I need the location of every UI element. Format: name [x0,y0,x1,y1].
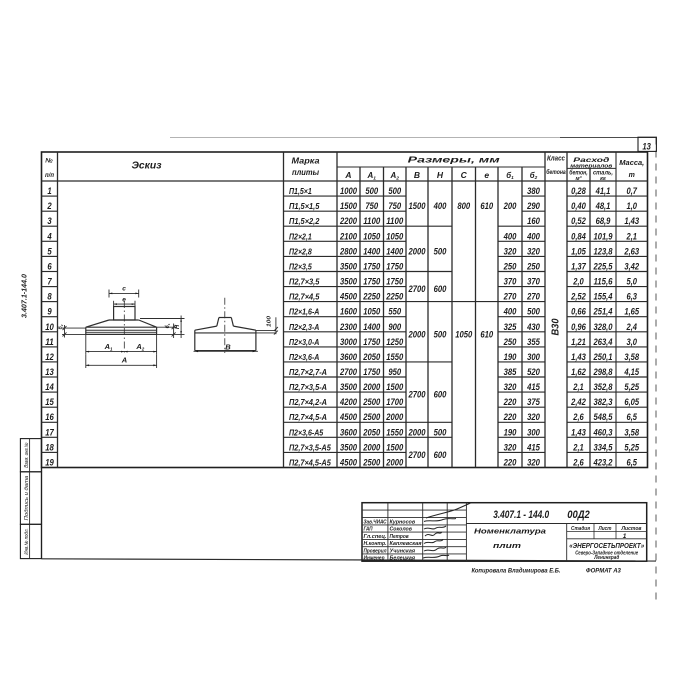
svg-text:17: 17 [45,427,54,437]
svg-text:1,37: 1,37 [571,261,587,271]
svg-text:7: 7 [47,277,52,287]
svg-text:415: 415 [526,442,540,452]
svg-text:Класс: Класс [547,156,565,163]
svg-text:П2,7×3,5-А: П2,7×3,5-А [289,382,327,392]
svg-text:Инженер: Инженер [364,556,385,562]
svg-text:Эскиз: Эскиз [132,161,162,172]
svg-text:3500: 3500 [340,261,357,271]
svg-text:2,42: 2,42 [570,397,586,407]
svg-text:460,3: 460,3 [593,427,613,437]
svg-text:10: 10 [45,322,54,332]
svg-text:2100: 2100 [339,231,357,241]
svg-text:225,5: 225,5 [593,261,614,271]
svg-text:2,6: 2,6 [572,412,584,422]
svg-text:П2,7×4,5-А: П2,7×4,5-А [289,412,327,422]
svg-text:2500: 2500 [362,397,380,407]
svg-text:400: 400 [526,231,540,241]
svg-text:б1: б1 [164,323,171,328]
svg-text:6: 6 [47,261,52,271]
svg-text:Соколов: Соколов [390,527,413,533]
svg-text:2,0: 2,0 [572,277,583,287]
svg-text:ГАП: ГАП [364,527,374,533]
svg-text:600: 600 [434,390,447,400]
svg-text:2200: 2200 [339,216,357,226]
svg-text:Листов: Листов [621,526,642,532]
svg-text:1500: 1500 [409,201,426,211]
svg-text:2000: 2000 [385,457,403,467]
svg-text:1100: 1100 [363,216,380,226]
svg-text:5,25: 5,25 [624,382,640,392]
svg-text:320: 320 [527,412,540,422]
svg-text:0,28: 0,28 [571,186,586,196]
svg-text:2,1: 2,1 [572,382,583,392]
svg-text:1,62: 1,62 [571,367,586,377]
svg-text:В: В [225,342,231,351]
svg-text:9: 9 [47,307,51,317]
svg-text:13: 13 [642,141,651,151]
svg-text:3,42: 3,42 [624,261,639,271]
svg-text:4200: 4200 [339,397,357,407]
svg-text:Н.контр.: Н.контр. [364,541,387,547]
svg-text:Стадия: Стадия [571,526,590,532]
svg-text:2,4: 2,4 [626,322,637,332]
svg-text:А: А [121,356,127,365]
svg-text:Н: Н [175,324,181,329]
svg-text:385: 385 [504,367,518,377]
svg-text:1750: 1750 [363,337,380,347]
svg-text:4: 4 [46,231,51,241]
svg-text:В: В [414,170,420,180]
svg-text:0,40: 0,40 [571,201,586,211]
svg-text:750: 750 [388,201,401,211]
svg-text:320: 320 [504,442,517,452]
svg-text:115,6: 115,6 [594,277,614,287]
svg-text:334,5: 334,5 [594,442,614,452]
svg-text:263,4: 263,4 [593,337,613,347]
svg-text:250: 250 [503,337,517,347]
svg-text:Марка: Марка [292,157,321,166]
svg-text:Каплевская: Каплевская [390,541,423,547]
svg-text:1,05: 1,05 [571,246,587,256]
svg-text:б2: б2 [530,171,538,180]
svg-text:Зав.ЧИАС: Зав.ЧИАС [364,519,388,525]
svg-text:355: 355 [527,337,541,347]
svg-text:1400: 1400 [363,246,380,256]
svg-text:2700: 2700 [339,367,357,377]
svg-text:2000: 2000 [408,427,426,437]
svg-text:3,0: 3,0 [627,337,638,347]
svg-text:270: 270 [526,292,540,302]
svg-text:кг: кг [600,176,606,182]
svg-text:Гл.спец.: Гл.спец. [364,534,387,540]
svg-text:123,8: 123,8 [594,246,613,256]
svg-text:400: 400 [503,307,517,317]
svg-text:325: 325 [504,322,518,332]
svg-text:1400: 1400 [386,246,403,256]
svg-text:1500: 1500 [386,382,403,392]
svg-text:1250: 1250 [386,337,403,347]
svg-text:П2×3,6-А: П2×3,6-А [289,352,319,362]
svg-text:0,52: 0,52 [571,216,586,226]
svg-text:6,3: 6,3 [627,292,638,302]
svg-text:352,8: 352,8 [594,382,613,392]
svg-text:2250: 2250 [362,292,380,302]
svg-text:П1,5×1: П1,5×1 [289,186,312,196]
svg-text:материалов: материалов [570,164,613,170]
svg-text:1600: 1600 [340,307,357,317]
svg-text:19: 19 [45,457,54,467]
svg-text:1100: 1100 [386,216,403,226]
svg-text:3500: 3500 [340,442,357,452]
svg-text:610: 610 [480,330,493,340]
svg-text:п/п: п/п [45,173,54,179]
svg-text:2050: 2050 [362,352,380,362]
svg-text:380: 380 [527,186,540,196]
svg-text:4500: 4500 [339,457,357,467]
svg-text:2300: 2300 [339,322,357,332]
svg-text:1400: 1400 [363,322,380,332]
svg-text:1,21: 1,21 [571,337,586,347]
svg-text:2800: 2800 [339,246,357,256]
svg-text:П2×3,5: П2×3,5 [289,261,312,271]
svg-text:400: 400 [433,201,447,211]
svg-text:6,05: 6,05 [624,397,640,407]
svg-text:220: 220 [503,397,517,407]
svg-text:15: 15 [45,397,54,407]
svg-text:5,25: 5,25 [624,442,640,452]
svg-text:900: 900 [388,322,401,332]
svg-text:1500: 1500 [386,442,403,452]
svg-text:П2,7×4,2-А: П2,7×4,2-А [289,397,327,407]
svg-text:220: 220 [503,412,517,422]
svg-text:1050: 1050 [386,231,403,241]
svg-text:6,5: 6,5 [627,412,638,422]
svg-text:1,0: 1,0 [627,201,638,211]
svg-text:1550: 1550 [386,427,403,437]
svg-text:400: 400 [503,231,517,241]
svg-text:Взам. инв.№: Взам. инв.№ [24,442,30,468]
svg-text:200: 200 [503,201,517,211]
svg-text:251,4: 251,4 [593,307,613,317]
svg-text:250: 250 [503,261,517,271]
svg-text:1700: 1700 [386,397,403,407]
svg-text:68,9: 68,9 [596,216,611,226]
svg-text:П2,7×3,5: П2,7×3,5 [289,277,320,287]
svg-text:П2,7×4,5: П2,7×4,5 [289,292,320,302]
svg-text:1: 1 [47,186,51,196]
svg-text:2,63: 2,63 [624,246,640,256]
svg-text:Проверил: Проверил [364,548,387,554]
svg-text:500: 500 [434,246,447,256]
svg-text:0,96: 0,96 [571,322,587,332]
svg-text:382,3: 382,3 [594,397,613,407]
svg-text:Лист: Лист [598,526,612,532]
svg-text:500: 500 [434,329,447,339]
svg-text:12: 12 [45,352,54,362]
svg-text:бетона: бетона [546,168,566,176]
svg-text:Подпись и дата: Подпись и дата [24,476,30,521]
svg-text:610: 610 [480,201,493,211]
svg-text:1750: 1750 [363,277,380,287]
svg-text:П2,7×2,7-А: П2,7×2,7-А [289,367,327,377]
svg-text:1750: 1750 [386,277,403,287]
svg-text:3600: 3600 [340,352,357,362]
svg-text:с: с [122,285,126,292]
svg-text:Курносов: Курносов [390,519,416,525]
svg-text:2700: 2700 [408,284,426,294]
svg-text:№: № [45,158,53,165]
svg-text:160: 160 [527,216,540,226]
svg-text:3500: 3500 [340,382,357,392]
svg-text:плиты: плиты [292,168,319,177]
svg-text:В30: В30 [550,318,561,335]
svg-text:0,66: 0,66 [571,307,587,317]
svg-text:1: 1 [623,533,627,540]
svg-text:16: 16 [45,412,54,422]
svg-text:320: 320 [504,382,517,392]
svg-text:П2×3,0-А: П2×3,0-А [289,337,319,347]
svg-text:1500: 1500 [340,201,357,211]
svg-text:Н: Н [437,170,444,180]
svg-text:3.407.1-144.0: 3.407.1-144.0 [20,273,29,318]
svg-text:1050: 1050 [363,231,380,241]
svg-text:м³: м³ [575,175,581,182]
svg-text:600: 600 [434,284,447,294]
svg-text:Копировала Владимирова Е.Б.: Копировала Владимирова Е.Б. [472,566,561,574]
svg-text:6,5: 6,5 [627,457,638,467]
svg-text:250,1: 250,1 [593,352,613,362]
svg-text:т: т [629,172,635,179]
svg-text:190: 190 [504,427,517,437]
svg-text:300: 300 [527,352,540,362]
svg-text:320: 320 [527,457,540,467]
svg-text:300: 300 [527,427,540,437]
svg-text:П2×1,6-А: П2×1,6-А [289,307,319,317]
svg-text:Инв.№ подл.: Инв.№ подл. [24,528,30,554]
svg-text:14: 14 [45,382,54,392]
svg-text:370: 370 [504,277,517,287]
svg-text:2,1: 2,1 [626,231,637,241]
svg-text:П1,5×2,2: П1,5×2,2 [289,216,320,226]
svg-text:Петров: Петров [390,534,410,540]
svg-text:П2×2,3-А: П2×2,3-А [289,322,319,332]
svg-text:00Д2: 00Д2 [567,509,590,521]
svg-text:ФОРМАТ А3: ФОРМАТ А3 [586,567,621,574]
svg-text:А1: А1 [367,171,377,181]
svg-text:328,0: 328,0 [594,322,613,332]
svg-text:«ЭНЕРГОСЕТЬПРОЕКТ»: «ЭНЕРГОСЕТЬПРОЕКТ» [569,543,644,550]
svg-text:Номенклатура: Номенклатура [474,527,546,536]
svg-text:1750: 1750 [363,367,380,377]
svg-text:1050: 1050 [363,307,380,317]
svg-text:3500: 3500 [340,277,357,287]
svg-text:Белецкая: Белецкая [390,556,416,562]
svg-text:430: 430 [526,322,540,332]
svg-text:2000: 2000 [362,382,380,392]
svg-text:2000: 2000 [385,412,403,422]
svg-text:Масса,: Масса, [619,160,644,167]
svg-text:190: 190 [504,352,517,362]
svg-text:370: 370 [527,277,540,287]
svg-text:0,84: 0,84 [571,231,586,241]
svg-text:5,0: 5,0 [627,277,638,287]
svg-text:С: С [461,170,468,180]
svg-text:2500: 2500 [362,457,380,467]
svg-text:3,58: 3,58 [624,427,639,437]
svg-text:2500: 2500 [362,412,380,422]
svg-text:8: 8 [47,292,51,302]
svg-text:П2×2,8: П2×2,8 [289,246,312,256]
svg-text:Ленинград: Ленинград [593,555,619,561]
svg-text:2000: 2000 [408,246,426,256]
svg-text:1,65: 1,65 [624,307,640,317]
svg-text:48,1: 48,1 [595,201,611,211]
svg-text:3,58: 3,58 [624,352,639,362]
svg-text:500: 500 [365,186,378,196]
svg-text:2050: 2050 [362,427,380,437]
svg-text:13: 13 [45,367,54,377]
svg-text:П1,5×1,5: П1,5×1,5 [289,201,320,211]
svg-text:плит: плит [493,541,521,550]
svg-text:1000: 1000 [340,186,357,196]
svg-text:375: 375 [527,397,541,407]
svg-text:270: 270 [503,292,517,302]
svg-text:2250: 2250 [385,292,403,302]
svg-text:520: 520 [527,367,540,377]
svg-text:423,2: 423,2 [593,457,613,467]
svg-text:750: 750 [365,201,378,211]
svg-text:А2: А2 [390,171,400,181]
svg-text:0,7: 0,7 [627,186,638,196]
svg-text:3: 3 [47,216,51,226]
svg-text:1,43: 1,43 [571,427,586,437]
svg-text:3600: 3600 [340,427,357,437]
svg-text:4,15: 4,15 [624,367,640,377]
svg-text:11: 11 [45,337,54,347]
svg-text:2000: 2000 [408,329,426,339]
svg-text:548,5: 548,5 [594,412,614,422]
svg-text:А1: А1 [104,342,113,351]
svg-text:298,8: 298,8 [593,367,613,377]
svg-text:1,43: 1,43 [571,352,586,362]
svg-text:2,6: 2,6 [572,457,584,467]
svg-text:1,43: 1,43 [624,216,639,226]
svg-text:1550: 1550 [386,352,403,362]
svg-text:290: 290 [526,201,540,211]
svg-text:3000: 3000 [340,337,357,347]
svg-text:100: 100 [266,316,272,327]
svg-text:220: 220 [503,457,517,467]
svg-text:101,9: 101,9 [594,231,613,241]
svg-text:3.407.1 - 144.0: 3.407.1 - 144.0 [493,509,550,521]
svg-text:е: е [484,170,489,180]
svg-text:4500: 4500 [339,292,357,302]
svg-text:2000: 2000 [362,442,380,452]
svg-text:2700: 2700 [408,390,426,400]
svg-text:18: 18 [45,442,54,452]
svg-text:1750: 1750 [363,261,380,271]
svg-text:950: 950 [388,367,401,377]
svg-text:Размеры, мм: Размеры, мм [408,154,501,164]
svg-text:А2: А2 [135,342,144,351]
svg-text:500: 500 [434,427,447,437]
svg-text:1750: 1750 [386,261,403,271]
svg-text:П2×3,6-А5: П2×3,6-А5 [289,427,323,437]
svg-text:550: 550 [388,307,401,317]
svg-text:41,1: 41,1 [595,186,611,196]
svg-text:б1: б1 [506,171,514,180]
svg-text:П2,7×4,5-А5: П2,7×4,5-А5 [289,457,331,467]
svg-text:320: 320 [504,246,517,256]
svg-text:500: 500 [527,307,540,317]
svg-text:800: 800 [457,201,470,211]
svg-text:П2,7×3,5-А5: П2,7×3,5-А5 [289,442,331,452]
svg-text:А: А [344,170,351,180]
svg-text:П2×2,1: П2×2,1 [289,231,312,241]
svg-text:2: 2 [46,201,51,211]
svg-text:2700: 2700 [408,450,426,460]
svg-text:500: 500 [388,186,401,196]
svg-text:155,4: 155,4 [594,292,613,302]
svg-text:415: 415 [526,382,540,392]
svg-text:4500: 4500 [339,412,357,422]
svg-text:2,1: 2,1 [572,442,583,452]
svg-text:250: 250 [526,261,540,271]
svg-text:5: 5 [47,246,52,256]
svg-text:е: е [122,297,126,304]
svg-text:2,52: 2,52 [570,292,586,302]
svg-text:600: 600 [434,450,447,460]
svg-text:Учинская: Учинская [390,548,416,554]
svg-text:1050: 1050 [455,330,472,340]
svg-text:320: 320 [527,246,540,256]
